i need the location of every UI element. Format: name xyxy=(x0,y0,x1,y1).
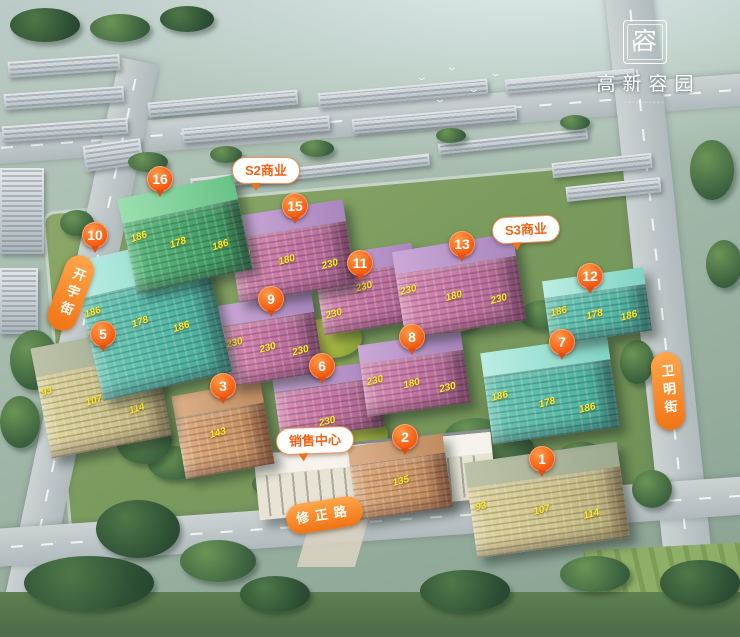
building-15-number-badge: 15 xyxy=(282,193,308,219)
tree-cluster xyxy=(180,540,256,582)
building-9-number-badge: 9 xyxy=(258,286,284,312)
brand-seal-icon: 容 xyxy=(623,20,667,64)
tree-cluster xyxy=(690,140,734,200)
tree-cluster xyxy=(10,8,80,42)
s2-retail-label: S2商业 xyxy=(232,157,300,184)
building-13-number-badge: 13 xyxy=(449,231,475,257)
tree-cluster xyxy=(300,140,334,157)
tree-cluster xyxy=(96,500,180,558)
tree-cluster xyxy=(706,240,740,288)
building-1-number-badge: 1 xyxy=(529,446,555,472)
building-12-number-badge: 12 xyxy=(577,263,603,289)
building-7-number-badge: 7 xyxy=(549,329,575,355)
building-5-number-badge: 5 xyxy=(90,321,116,347)
bird-icon: ⌄ xyxy=(467,84,480,95)
tree-cluster xyxy=(560,115,590,130)
tree-cluster xyxy=(660,560,740,606)
building-10-number-badge: 10 xyxy=(82,222,108,248)
tree-cluster xyxy=(632,470,672,508)
building-8-number-badge: 8 xyxy=(399,324,425,350)
tree-cluster xyxy=(620,340,654,384)
brand-title: 高新容园 xyxy=(578,75,712,94)
building-2-number-badge: 2 xyxy=(392,424,418,450)
tree-cluster xyxy=(420,570,510,612)
masterplan-aerial-rendering: 9310711411352143393107114523061861781867… xyxy=(0,0,740,637)
bird-icon: ⌄ xyxy=(433,94,446,105)
tree-cluster xyxy=(90,14,150,42)
tree-cluster xyxy=(560,556,630,592)
bird-icon: ⌄ xyxy=(489,68,502,79)
building-11-number-badge: 11 xyxy=(347,250,373,276)
sales-center-label: 销售中心 xyxy=(276,426,355,456)
brand-tagline: ▫▫▫▫▫▫▫▫▫▫ xyxy=(578,100,712,106)
tree-cluster xyxy=(240,576,310,612)
tree-cluster xyxy=(160,6,214,32)
building-3-number-badge: 3 xyxy=(210,373,236,399)
tree-cluster xyxy=(436,128,466,143)
tree-cluster xyxy=(24,556,154,610)
bird-icon: ⌄ xyxy=(445,62,458,73)
offsite-building xyxy=(0,168,44,254)
building-7: 186178186 xyxy=(480,336,620,445)
s3-retail-label: S3商业 xyxy=(491,214,560,245)
building-16-number-badge: 16 xyxy=(147,166,173,192)
brand-logo: 容 高新容园 ▫▫▫▫▫▫▫▫▫▫ xyxy=(578,20,712,106)
seal-glyph: 容 xyxy=(633,30,657,54)
offsite-building xyxy=(0,268,38,334)
offsite-building xyxy=(8,54,121,78)
building-6-number-badge: 6 xyxy=(309,353,335,379)
tree-cluster xyxy=(0,396,40,448)
offsite-building xyxy=(4,86,125,110)
bird-icon: ⌄ xyxy=(415,72,428,83)
